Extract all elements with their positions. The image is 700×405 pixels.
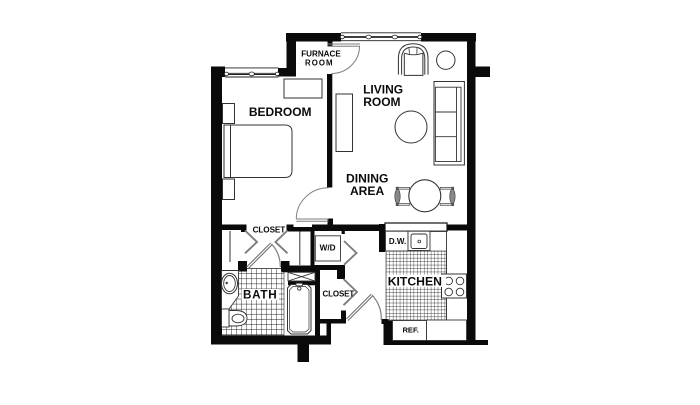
svg-text:BATH: BATH [243, 289, 277, 302]
svg-text:D.W.: D.W. [389, 237, 406, 246]
svg-text:FURNACE: FURNACE [301, 49, 341, 58]
svg-text:AREA: AREA [350, 184, 385, 198]
svg-text:CLOSET: CLOSET [323, 290, 355, 299]
svg-text:KITCHEN: KITCHEN [388, 274, 442, 288]
svg-text:REF.: REF. [402, 326, 418, 335]
svg-text:ROOM: ROOM [305, 58, 334, 67]
svg-text:ROOM: ROOM [363, 95, 400, 109]
svg-text:W/D: W/D [320, 244, 336, 253]
svg-text:BEDROOM: BEDROOM [249, 105, 312, 119]
svg-text:CLOSET: CLOSET [253, 225, 286, 234]
